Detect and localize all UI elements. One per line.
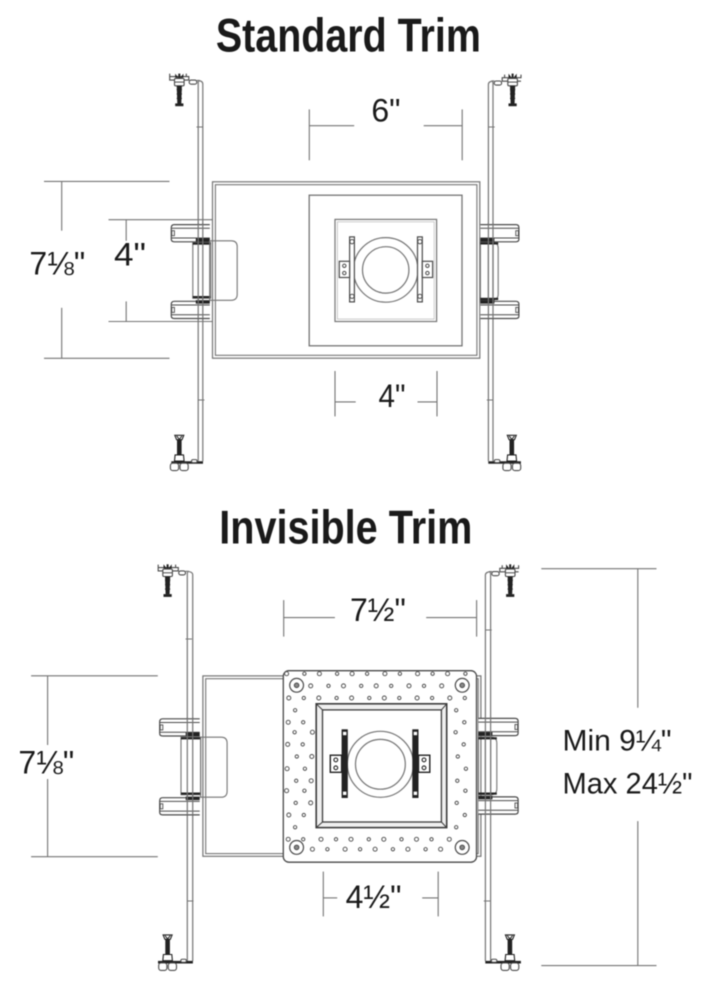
svg-text:7⅛": 7⅛" [29, 246, 85, 282]
svg-text:4": 4" [379, 378, 406, 414]
svg-text:7½": 7½" [350, 592, 406, 628]
svg-text:4½": 4½" [346, 879, 402, 915]
svg-text:Min 9¼": Min 9¼" [563, 724, 672, 757]
svg-text:6": 6" [371, 93, 400, 129]
svg-text:Standard Trim: Standard Trim [216, 9, 481, 62]
svg-text:Max 24½": Max 24½" [563, 768, 693, 801]
svg-text:7⅛": 7⅛" [18, 745, 74, 781]
svg-text:4": 4" [114, 237, 146, 273]
svg-text:Invisible Trim: Invisible Trim [219, 501, 472, 554]
